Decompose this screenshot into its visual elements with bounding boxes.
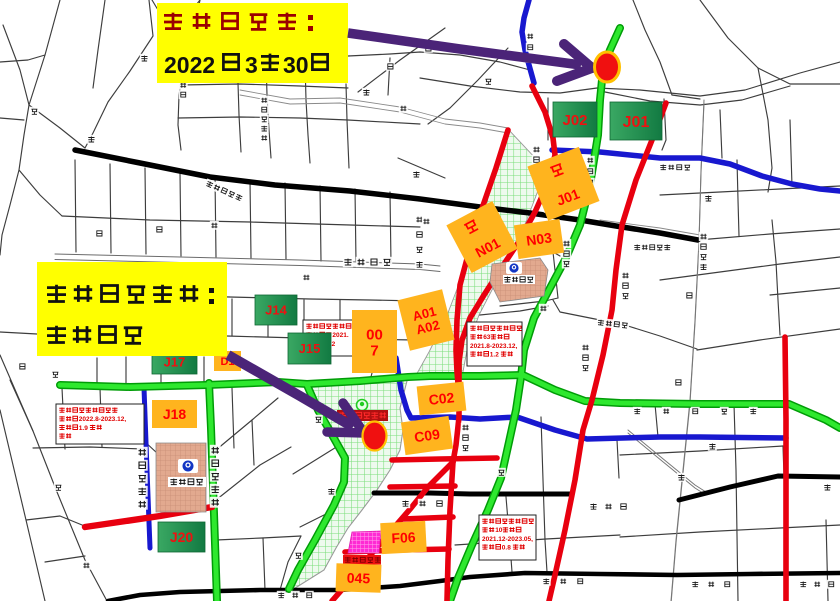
svg-text:J14: J14 <box>265 303 287 318</box>
svg-text:3: 3 <box>245 52 258 78</box>
svg-text:J18: J18 <box>163 406 187 422</box>
svg-text:2021.8-2023.12,: 2021.8-2023.12, <box>470 343 518 350</box>
svg-text:J17: J17 <box>164 355 186 370</box>
svg-text:J15: J15 <box>299 341 321 356</box>
svg-text:0.8: 0.8 <box>502 544 511 551</box>
svg-text:10: 10 <box>495 527 503 534</box>
svg-text:7: 7 <box>370 343 378 360</box>
svg-text:C02: C02 <box>428 389 455 408</box>
svg-text:2021.: 2021. <box>332 332 348 339</box>
svg-text:045: 045 <box>347 570 371 587</box>
svg-text:J01: J01 <box>623 114 650 131</box>
svg-text:1.9: 1.9 <box>79 425 88 432</box>
svg-text:F06: F06 <box>391 529 416 546</box>
svg-text:J02: J02 <box>562 112 587 129</box>
svg-text:2021.12-2023.05,: 2021.12-2023.05, <box>482 536 533 543</box>
svg-text:2022.8-2023.12,: 2022.8-2023.12, <box>79 416 127 423</box>
svg-text:J20: J20 <box>170 529 194 545</box>
svg-text:1.2: 1.2 <box>490 351 499 358</box>
svg-text:63: 63 <box>483 334 491 341</box>
svg-text:30: 30 <box>283 52 309 78</box>
svg-text:2022: 2022 <box>164 52 215 78</box>
svg-text:00: 00 <box>366 327 383 344</box>
